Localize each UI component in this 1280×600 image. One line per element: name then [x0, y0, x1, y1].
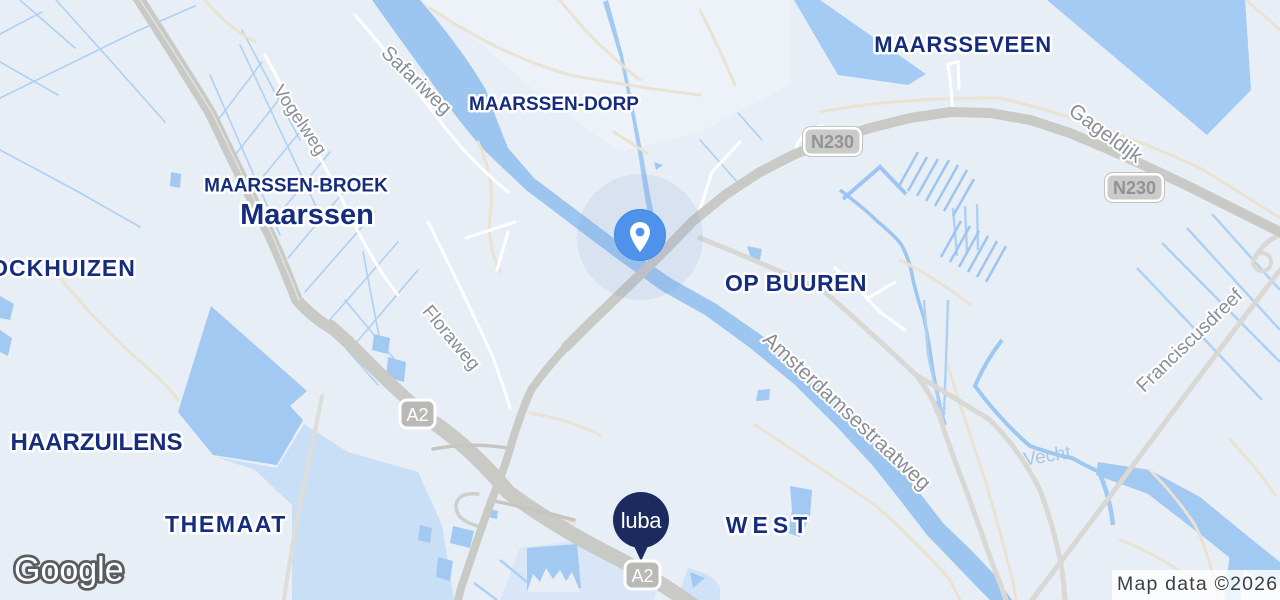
- svg-text:N230: N230: [811, 132, 854, 152]
- svg-text:A2: A2: [631, 566, 653, 586]
- svg-text:Google: Google: [14, 551, 124, 589]
- svg-text:OCKHUIZEN: OCKHUIZEN: [0, 255, 136, 281]
- svg-text:OP BUUREN: OP BUUREN: [725, 270, 867, 296]
- svg-text:A2: A2: [406, 405, 428, 425]
- svg-text:MAARSSEVEEN: MAARSSEVEEN: [874, 32, 1052, 57]
- svg-text:MAARSSEN-BROEK: MAARSSEN-BROEK: [204, 176, 388, 197]
- svg-text:WEST: WEST: [726, 512, 812, 538]
- svg-text:N230: N230: [1113, 178, 1156, 198]
- svg-text:Map data ©2026: Map data ©2026: [1117, 573, 1278, 595]
- svg-text:HAARZUILENS: HAARZUILENS: [11, 429, 183, 456]
- svg-text:MAARSSEN-DORP: MAARSSEN-DORP: [469, 94, 639, 115]
- svg-text:THEMAAT: THEMAAT: [165, 511, 287, 537]
- svg-text:luba: luba: [621, 508, 662, 533]
- svg-text:Maarssen: Maarssen: [240, 199, 374, 231]
